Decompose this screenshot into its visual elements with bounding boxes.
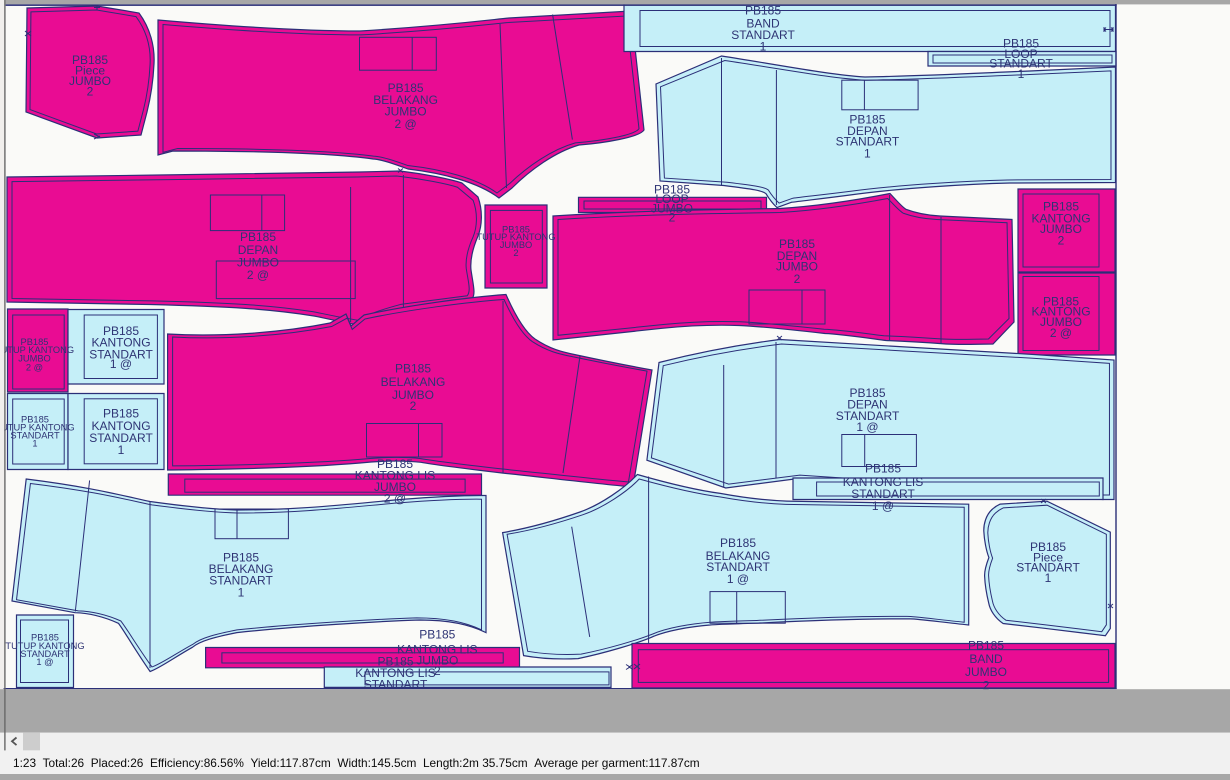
svg-text:2: 2: [1058, 234, 1065, 248]
svg-text:1: 1: [118, 443, 125, 457]
svg-text:2: 2: [794, 272, 801, 286]
svg-text:BELAKANG: BELAKANG: [381, 375, 446, 389]
svg-text:2: 2: [669, 210, 676, 224]
svg-text:BAND: BAND: [969, 652, 1003, 666]
svg-text:2: 2: [87, 85, 94, 99]
svg-text:1 @: 1 @: [110, 357, 132, 371]
svg-text:1: 1: [1045, 571, 1052, 585]
svg-text:PB185: PB185: [240, 230, 276, 244]
svg-text:1 @: 1 @: [872, 499, 894, 513]
svg-text:1 @: 1 @: [856, 420, 878, 434]
svg-text:1: 1: [1018, 67, 1025, 81]
svg-text:2 @: 2 @: [394, 117, 416, 131]
svg-text:PB185: PB185: [720, 536, 756, 550]
svg-text:1 @: 1 @: [36, 657, 53, 667]
svg-text:1: 1: [238, 585, 245, 599]
svg-text:1 @: 1 @: [727, 572, 749, 586]
svg-text:PB185: PB185: [865, 462, 901, 476]
svg-text:PB185: PB185: [968, 639, 1004, 653]
svg-text:1: 1: [760, 39, 767, 53]
svg-text:2 @: 2 @: [26, 362, 43, 372]
svg-text:2 @: 2 @: [247, 268, 269, 282]
svg-text:JUMBO: JUMBO: [965, 665, 1007, 679]
svg-text:1: 1: [32, 439, 37, 449]
svg-text:2: 2: [513, 248, 518, 258]
svg-text:PB185: PB185: [419, 628, 455, 642]
svg-text:1: 1: [864, 146, 871, 160]
svg-text:1:23 Total:26 Placed:26 Eff: 1:23 Total:26 Placed:26 Efficiency:86.56…: [13, 756, 700, 770]
svg-text:2: 2: [410, 399, 417, 413]
svg-text:2 @: 2 @: [384, 492, 406, 506]
svg-text:PB185: PB185: [395, 362, 431, 376]
svg-text:2 @: 2 @: [1050, 326, 1072, 340]
